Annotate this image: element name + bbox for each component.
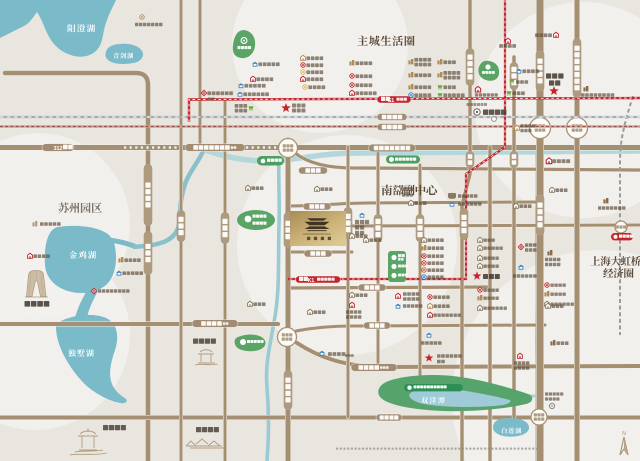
svg-text:N: N bbox=[622, 431, 626, 437]
svg-text:K1: K1 bbox=[308, 278, 315, 284]
svg-text:312: 312 bbox=[54, 146, 63, 152]
